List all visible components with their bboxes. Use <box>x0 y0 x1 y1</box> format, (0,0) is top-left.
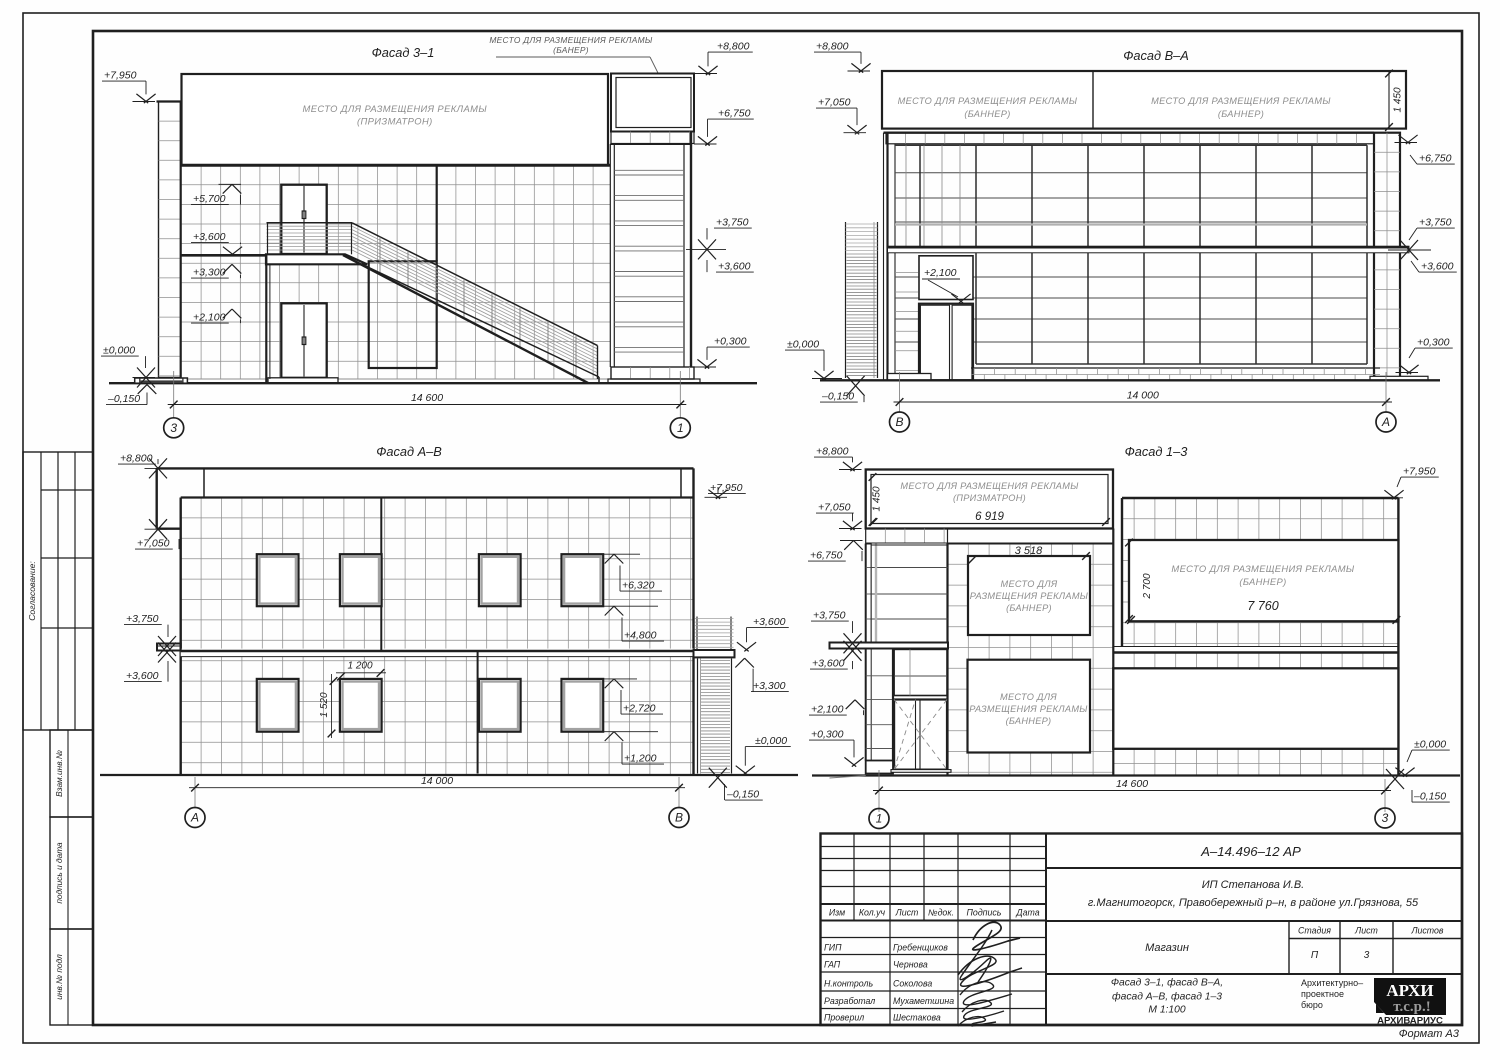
svg-text:1 200: 1 200 <box>347 661 372 672</box>
svg-text:1 450: 1 450 <box>1393 87 1404 112</box>
svg-text:3 518: 3 518 <box>1015 545 1043 557</box>
svg-text:Разработал: Разработал <box>824 996 875 1006</box>
svg-text:А: А <box>190 811 199 825</box>
svg-text:МЕСТО ДЛЯ РАЗМЕЩЕНИЯ РЕКЛАМЫ: МЕСТО ДЛЯ РАЗМЕЩЕНИЯ РЕКЛАМЫ <box>489 35 653 45</box>
svg-text:1 450: 1 450 <box>872 486 883 511</box>
svg-text:+6,750: +6,750 <box>1419 153 1452 165</box>
svg-text:±0,000: ±0,000 <box>787 339 819 351</box>
svg-text:+7,950: +7,950 <box>104 70 137 82</box>
svg-text:МЕСТО ДЛЯ: МЕСТО ДЛЯ <box>1000 692 1057 702</box>
svg-text:6 919: 6 919 <box>975 511 1004 523</box>
svg-text:+8,800: +8,800 <box>816 41 849 53</box>
svg-text:+7,950: +7,950 <box>710 482 743 494</box>
svg-text:+4,800: +4,800 <box>624 630 657 642</box>
svg-text:Изм: Изм <box>829 908 845 918</box>
svg-text:±0,000: ±0,000 <box>755 735 787 747</box>
svg-text:+3,300: +3,300 <box>753 680 786 692</box>
svg-text:Чернова: Чернова <box>893 960 928 970</box>
svg-text:+8,800: +8,800 <box>816 446 849 458</box>
svg-text:Взам.инв.№: Взам.инв.№ <box>54 750 64 797</box>
svg-text:Фасад 1–3: Фасад 1–3 <box>1125 444 1188 459</box>
svg-text:В: В <box>675 811 683 825</box>
svg-text:Фасад 3–1: Фасад 3–1 <box>372 45 435 60</box>
svg-text:г.Магнитогорск, Правобережный: г.Магнитогорск, Правобережный р–н, в рай… <box>1088 897 1419 909</box>
svg-text:подпись и дата: подпись и дата <box>54 842 64 904</box>
svg-text:14 000: 14 000 <box>1127 390 1159 402</box>
svg-text:А–14.496–12 АР: А–14.496–12 АР <box>1200 844 1301 859</box>
svg-text:+3,600: +3,600 <box>193 231 226 243</box>
svg-text:Фасад А–В: Фасад А–В <box>376 444 442 459</box>
svg-text:(БАННЕР): (БАННЕР) <box>1006 603 1052 613</box>
svg-text:проектное: проектное <box>1301 989 1344 999</box>
svg-text:7 760: 7 760 <box>1247 599 1278 613</box>
svg-text:Шестакова: Шестакова <box>893 1013 941 1023</box>
svg-text:МЕСТО ДЛЯ РАЗМЕЩЕНИЯ РЕКЛАМЫ: МЕСТО ДЛЯ РАЗМЕЩЕНИЯ РЕКЛАМЫ <box>900 481 1079 491</box>
svg-text:+7,050: +7,050 <box>818 502 851 514</box>
svg-text:+7,050: +7,050 <box>818 97 851 109</box>
svg-text:(БАННЕР): (БАННЕР) <box>1006 716 1052 726</box>
svg-text:АРХИ: АРХИ <box>1386 981 1433 1000</box>
svg-text:+0,300: +0,300 <box>714 336 747 348</box>
svg-text:+1,200: +1,200 <box>624 753 657 765</box>
svg-text:РАЗМЕЩЕНИЯ РЕКЛАМЫ: РАЗМЕЩЕНИЯ РЕКЛАМЫ <box>969 704 1088 714</box>
svg-text:+3,600: +3,600 <box>126 670 159 682</box>
svg-text:Фасад 3–1, фасад В–А,: Фасад 3–1, фасад В–А, <box>1111 977 1223 989</box>
svg-text:+7,050: +7,050 <box>137 538 170 550</box>
svg-text:(БАННЕР): (БАННЕР) <box>964 109 1010 119</box>
svg-text:+3,600: +3,600 <box>812 658 845 670</box>
svg-text:+3,600: +3,600 <box>718 261 751 273</box>
svg-text:Проверил: Проверил <box>824 1013 864 1023</box>
svg-text:(ПРИЗМАТРОН): (ПРИЗМАТРОН) <box>953 493 1026 503</box>
svg-text:1: 1 <box>876 812 883 826</box>
svg-text:+3,600: +3,600 <box>1421 261 1454 273</box>
svg-text:14 000: 14 000 <box>421 775 453 787</box>
svg-text:Магазин: Магазин <box>1145 942 1189 954</box>
svg-text:(ПРИЗМАТРОН): (ПРИЗМАТРОН) <box>357 116 433 127</box>
svg-text:В: В <box>895 415 903 429</box>
svg-text:МЕСТО ДЛЯ РАЗМЕЩЕНИЯ РЕКЛАМЫ: МЕСТО ДЛЯ РАЗМЕЩЕНИЯ РЕКЛАМЫ <box>1171 563 1354 574</box>
svg-text:+3,750: +3,750 <box>813 610 846 622</box>
svg-text:+6,320: +6,320 <box>622 580 655 592</box>
svg-text:Листов: Листов <box>1410 926 1443 936</box>
svg-text:+0,300: +0,300 <box>1417 337 1450 349</box>
svg-text:П: П <box>1311 950 1319 961</box>
svg-text:–0,150: –0,150 <box>107 393 140 405</box>
svg-text:т.с.р.!: т.с.р.! <box>1393 999 1431 1015</box>
svg-text:+2,100: +2,100 <box>193 312 226 324</box>
svg-text:Архитектурно–: Архитектурно– <box>1301 978 1363 988</box>
svg-text:МЕСТО ДЛЯ: МЕСТО ДЛЯ <box>1001 579 1058 589</box>
svg-text:+0,300: +0,300 <box>811 729 844 741</box>
svg-text:Лист: Лист <box>895 908 919 918</box>
svg-text:АРХИВАРИУС: АРХИВАРИУС <box>1377 1016 1443 1027</box>
svg-text:Формат А3: Формат А3 <box>1399 1028 1460 1040</box>
svg-text:+3,300: +3,300 <box>193 267 226 279</box>
svg-text:+3,750: +3,750 <box>126 613 159 625</box>
svg-text:–0,150: –0,150 <box>726 789 759 801</box>
svg-text:±0,000: ±0,000 <box>103 345 135 357</box>
svg-text:+3,600: +3,600 <box>753 616 786 628</box>
svg-text:+2,100: +2,100 <box>924 267 957 279</box>
svg-text:+8,800: +8,800 <box>120 453 153 465</box>
svg-text:Фасад В–А: Фасад В–А <box>1123 48 1189 63</box>
svg-text:+2,720: +2,720 <box>623 703 656 715</box>
svg-text:+2,100: +2,100 <box>811 704 844 716</box>
svg-text:Кол.уч: Кол.уч <box>859 908 886 918</box>
svg-text:Н.контроль: Н.контроль <box>824 979 873 989</box>
svg-text:1: 1 <box>677 421 684 435</box>
svg-text:Подпись: Подпись <box>967 908 1002 918</box>
svg-text:+3,750: +3,750 <box>716 217 749 229</box>
svg-text:(БАННЕР): (БАННЕР) <box>1239 576 1286 587</box>
svg-text:+5,700: +5,700 <box>193 193 226 205</box>
svg-text:А: А <box>1381 415 1390 429</box>
svg-text:МЕСТО ДЛЯ РАЗМЕЩЕНИЯ РЕКЛАМЫ: МЕСТО ДЛЯ РАЗМЕЩЕНИЯ РЕКЛАМЫ <box>898 96 1078 106</box>
svg-text:М 1:100: М 1:100 <box>1148 1005 1185 1016</box>
svg-text:1 520: 1 520 <box>319 692 330 717</box>
svg-text:2 700: 2 700 <box>1142 573 1153 599</box>
svg-text:МЕСТО ДЛЯ РАЗМЕЩЕНИЯ РЕКЛАМЫ: МЕСТО ДЛЯ РАЗМЕЩЕНИЯ РЕКЛАМЫ <box>1151 96 1331 106</box>
svg-text:+7,950: +7,950 <box>1403 466 1436 478</box>
svg-text:МЕСТО ДЛЯ РАЗМЕЩЕНИЯ РЕКЛАМЫ: МЕСТО ДЛЯ РАЗМЕЩЕНИЯ РЕКЛАМЫ <box>303 103 488 114</box>
svg-text:(БАННЕР): (БАННЕР) <box>1218 109 1264 119</box>
svg-text:3: 3 <box>170 421 177 435</box>
svg-text:инв.№ подл: инв.№ подл <box>54 954 64 1000</box>
svg-text:14 600: 14 600 <box>411 392 443 404</box>
svg-text:Дата: Дата <box>1015 908 1039 918</box>
svg-text:+8,800: +8,800 <box>717 41 750 53</box>
svg-text:РАЗМЕЩЕНИЯ РЕКЛАМЫ: РАЗМЕЩЕНИЯ РЕКЛАМЫ <box>970 591 1089 601</box>
svg-text:Стадия: Стадия <box>1298 926 1331 936</box>
svg-text:3: 3 <box>1364 950 1370 961</box>
svg-text:Согласование:: Согласование: <box>27 561 37 621</box>
svg-text:ИП Степанова И.В.: ИП Степанова И.В. <box>1202 879 1304 891</box>
svg-text:3: 3 <box>1382 811 1389 825</box>
svg-text:+3,750: +3,750 <box>1419 217 1452 229</box>
svg-text:+6,750: +6,750 <box>718 108 751 120</box>
svg-text:фасад А–В, фасад 1–3: фасад А–В, фасад 1–3 <box>1112 991 1222 1003</box>
svg-text:Лист: Лист <box>1354 926 1378 936</box>
svg-text:Гребенщиков: Гребенщиков <box>893 943 948 953</box>
svg-text:+6,750: +6,750 <box>810 550 843 562</box>
svg-text:±0,000: ±0,000 <box>1414 739 1446 751</box>
svg-text:ГИП: ГИП <box>824 943 842 953</box>
svg-text:бюро: бюро <box>1301 1000 1323 1010</box>
svg-text:–0,150: –0,150 <box>1413 791 1446 803</box>
svg-text:(БАНЕР): (БАНЕР) <box>553 45 589 55</box>
svg-text:Мухаметшина: Мухаметшина <box>893 996 954 1006</box>
svg-text:ГАП: ГАП <box>824 960 841 970</box>
svg-text:Соколова: Соколова <box>893 979 932 989</box>
svg-text:14 600: 14 600 <box>1116 778 1148 790</box>
svg-text:№док.: №док. <box>928 908 954 918</box>
